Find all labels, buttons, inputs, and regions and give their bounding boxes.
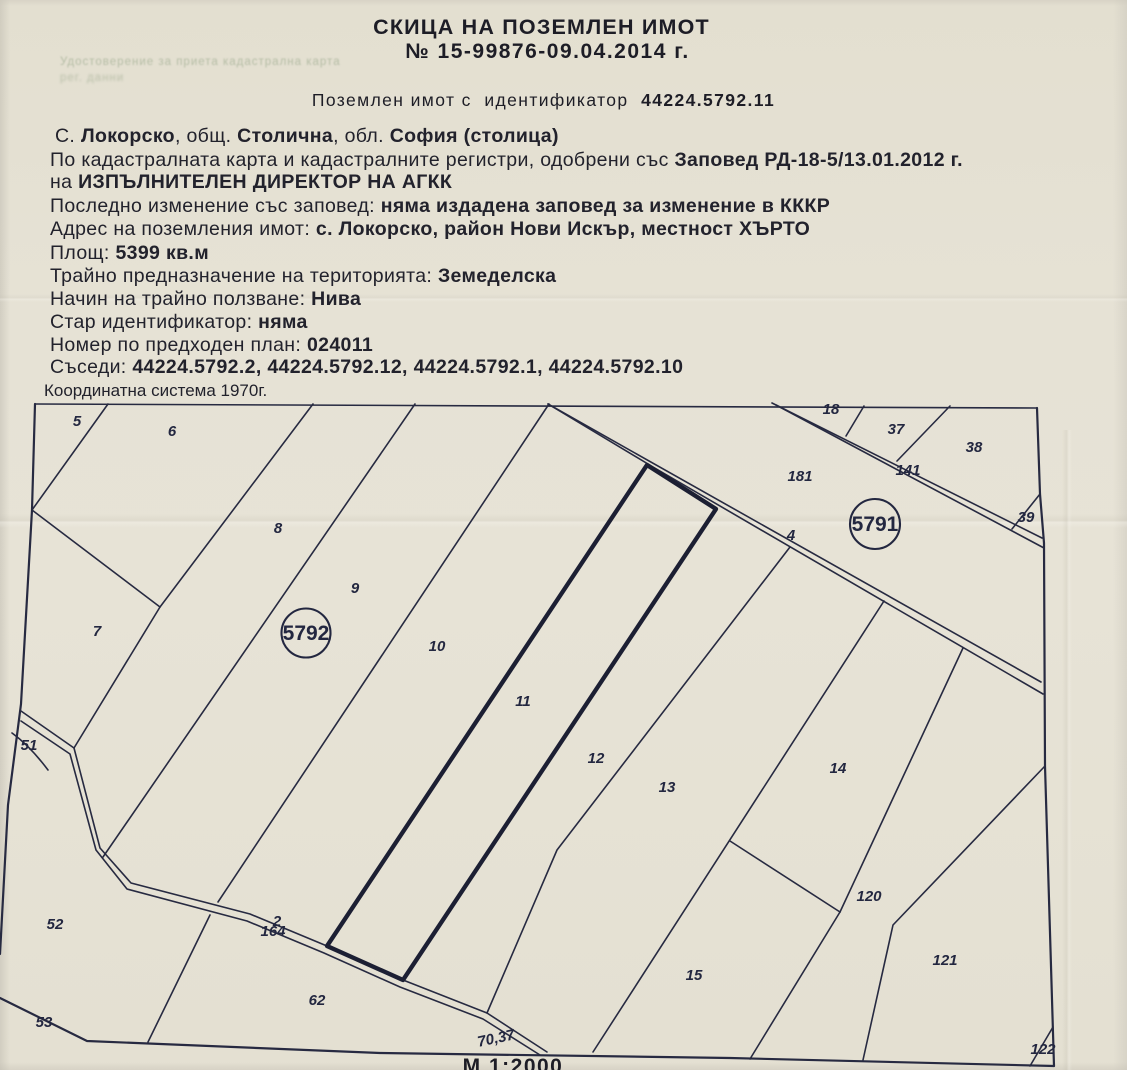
- svg-text:8: 8: [274, 520, 283, 537]
- svg-text:5792: 5792: [283, 622, 330, 645]
- svg-text:2: 2: [272, 913, 282, 930]
- svg-text:14: 14: [830, 760, 847, 777]
- svg-text:141: 141: [895, 462, 920, 479]
- svg-text:5791: 5791: [852, 513, 899, 536]
- svg-text:181: 181: [787, 468, 812, 485]
- svg-text:70,37: 70,37: [476, 1026, 517, 1051]
- svg-text:18: 18: [823, 401, 840, 418]
- svg-text:15: 15: [686, 967, 703, 984]
- svg-text:9: 9: [351, 580, 360, 597]
- svg-text:122: 122: [1030, 1041, 1056, 1058]
- svg-text:12: 12: [588, 750, 605, 767]
- svg-text:62: 62: [309, 992, 326, 1009]
- svg-text:121: 121: [932, 952, 957, 969]
- svg-text:52: 52: [47, 916, 64, 933]
- svg-text:37: 37: [888, 421, 905, 438]
- svg-text:120: 120: [856, 888, 882, 905]
- svg-text:51: 51: [21, 737, 38, 754]
- svg-text:53: 53: [36, 1014, 53, 1031]
- svg-text:4: 4: [786, 527, 796, 544]
- svg-text:39: 39: [1018, 509, 1035, 526]
- svg-text:5: 5: [73, 413, 82, 430]
- svg-text:М 1:2000: М 1:2000: [463, 1055, 564, 1070]
- svg-text:6: 6: [168, 423, 177, 440]
- svg-text:38: 38: [966, 439, 983, 456]
- svg-text:11: 11: [515, 693, 531, 710]
- svg-text:7: 7: [93, 623, 102, 640]
- svg-text:13: 13: [659, 779, 676, 796]
- svg-text:10: 10: [429, 638, 446, 655]
